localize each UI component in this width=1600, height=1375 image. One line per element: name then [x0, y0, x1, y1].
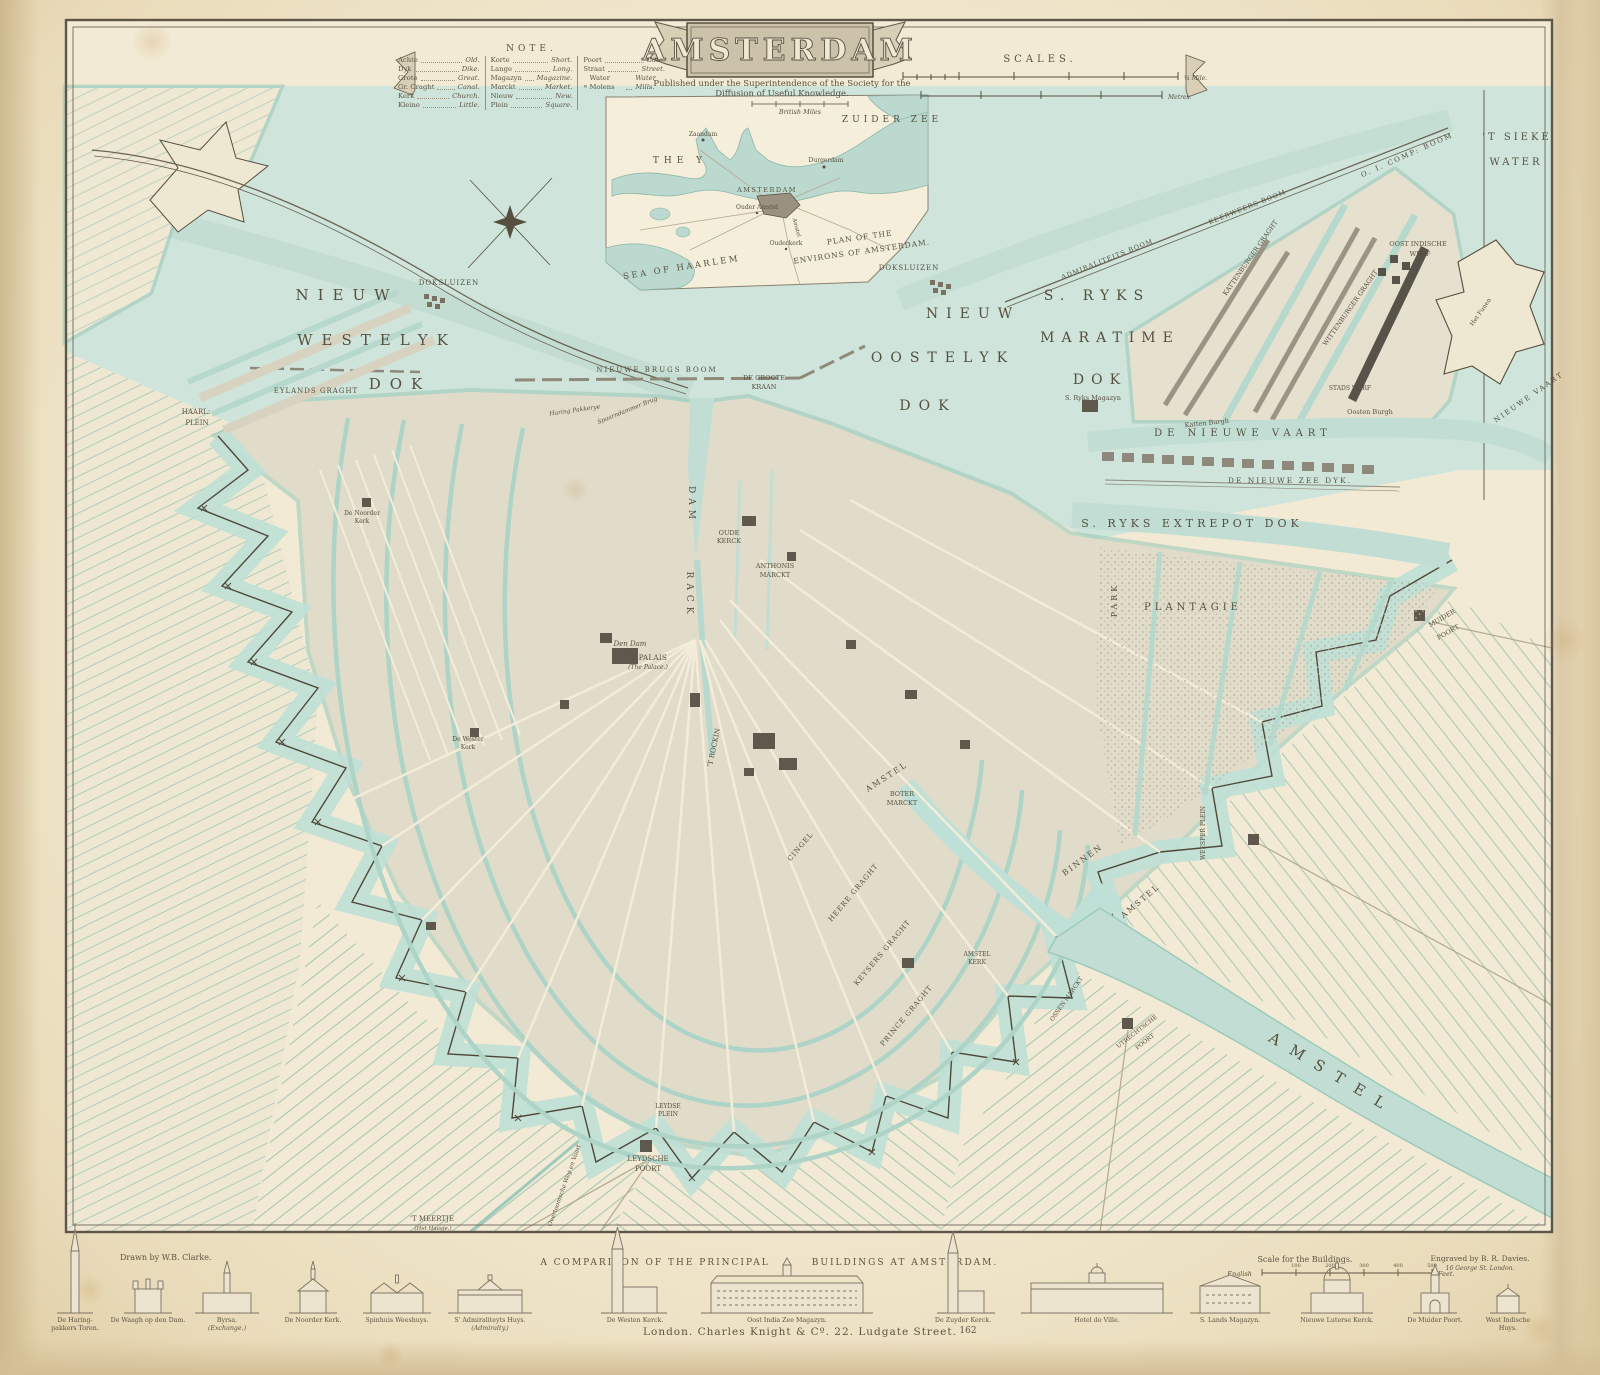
note-row: PleinSquare.	[491, 101, 573, 110]
note-row: MarcktMarket.	[491, 83, 573, 92]
note-column-1: AchteOld. DykDike. GroteGreat. Gr. Gragh…	[393, 56, 485, 110]
bldg-label-1a: De Haring-	[57, 1317, 92, 1324]
bldg-label-11: S. Lands Magazyn.	[1200, 1317, 1260, 1324]
note-heading: NOTE.	[393, 45, 670, 54]
label-wester-kerk-2: Kerk	[461, 744, 476, 751]
elevation-byrsa	[195, 1261, 259, 1313]
building-elevations	[57, 1223, 1526, 1313]
bldg-label-14a: West Indische	[1486, 1317, 1531, 1324]
label-zee-dyk: DE NIEUWE ZEE DYK.	[1228, 476, 1352, 485]
label-leydsche-poort-2: POORT	[635, 1165, 661, 1173]
note-column-3: PoortGate. StraatStreet. ✕Water MolensWa…	[577, 56, 670, 110]
label-wester-kerk-1: De Wester	[452, 736, 484, 743]
engraver-address: 16 George St. London.	[1446, 1265, 1515, 1272]
inset-zaandam: Zaandam	[689, 131, 718, 138]
scale-mile-label: ¾ Mile.	[1184, 75, 1207, 82]
label-park: PARK	[1110, 583, 1119, 617]
label-stads-werf: STADS WERF	[1329, 385, 1371, 392]
label-noorder-kerk-2: Kerk	[355, 518, 370, 525]
elevation-noorder-kerk	[289, 1261, 337, 1313]
note-row: KleineLittle.	[398, 101, 480, 110]
label-s-ryks-3: DOK	[1073, 372, 1127, 388]
elevation-spinhuis-weeshuys	[363, 1275, 431, 1313]
label-oi-werf-1: OOST INDISCHE	[1389, 240, 1447, 248]
bldg-label-14b: Huys.	[1499, 1325, 1517, 1332]
label-groote-kraan-2: KRAAN	[752, 383, 777, 391]
label-nieuw-westelyk-1: NIEUW	[295, 286, 398, 304]
scales-heading: SCALES.	[1003, 54, 1076, 65]
label-amstel-kerk-1: AMSTEL	[963, 951, 991, 958]
inset-ouder-amstel: Ouder Amstel	[736, 204, 778, 211]
note-row: KerkChurch.	[398, 92, 480, 101]
bldg-label-3b: (Exchange.)	[208, 1325, 247, 1332]
publisher-imprint: London. Charles Knight & Cº. 22. Ludgate…	[643, 1326, 957, 1338]
label-anthonis-1: ANTHONIS	[755, 562, 794, 570]
label-nieuw-westelyk-2: WESTELYK	[297, 331, 457, 349]
bldg-label-12: Nieuwe Luterse Kerck.	[1300, 1317, 1374, 1324]
bldg-label-6b: (Admiralty.)	[471, 1325, 509, 1332]
inset-zuider-zee: ZUIDER ZEE	[842, 115, 942, 125]
label-den-dam: Den Dam	[613, 640, 647, 648]
publisher-line2: Diffusion of Useful Knowledge.	[715, 89, 849, 99]
comparison-title-2: BUILDINGS AT AMSTERDAM.	[812, 1258, 998, 1268]
note-table: NOTE. AchteOld. DykDike. GroteGreat. Gr.…	[393, 45, 670, 110]
label-leydse-plein-1: LEYDSE	[655, 1103, 681, 1110]
note-row: GroteGreat.	[398, 74, 480, 83]
label-leydsche-poort-1: LEYDSCHE	[627, 1155, 668, 1163]
note-row: KorteShort.	[491, 56, 573, 65]
label-haarl-plein-1: HAARL:	[182, 408, 211, 416]
map-title: AMSTERDAM	[641, 33, 918, 68]
tick-400: 400	[1393, 1263, 1403, 1269]
tick-300: 300	[1359, 1263, 1369, 1269]
label-nieuw-oostelyk-2: OOSTELYK	[871, 350, 1015, 366]
bldg-label-5: Spinhuis Weeshuys.	[365, 1317, 428, 1324]
label-oude-kerck-1: OUDE	[719, 529, 740, 537]
label-doksluizen-east: DOKSLUIZEN	[879, 264, 939, 272]
label-amstel-kerk-2: KERK	[968, 959, 986, 966]
bldg-label-6a: S' Admiraliteyts Huys.	[454, 1317, 525, 1324]
label-noorder-kerk-1: De Noorder	[344, 510, 380, 517]
inset-the-y: THE Y	[653, 156, 707, 166]
label-sieke-2: WATER	[1490, 157, 1543, 168]
drawn-by-credit: Drawn by W.B. Clarke.	[120, 1253, 211, 1262]
elevation-hotel-de-ville	[1021, 1263, 1173, 1313]
tick-100: 100	[1291, 1263, 1301, 1269]
label-doksluizen-west: DOKSLUIZEN	[419, 279, 479, 287]
bldg-label-7: De Westen Kerck.	[607, 1317, 664, 1324]
bldg-label-10: Hotel de Ville.	[1074, 1317, 1120, 1324]
windmill-icon: ✕	[583, 83, 587, 92]
publisher-line1: Published under the Superintendence of t…	[653, 79, 910, 89]
bldg-label-1b: pakkers Toren.	[51, 1325, 99, 1332]
label-anthonis-2: MARCKT	[760, 571, 791, 579]
buildings-scale-bar	[1262, 1269, 1432, 1276]
label-dam: DAM	[686, 486, 696, 524]
note-row: Gr. GraghtCanal.	[398, 83, 480, 92]
label-s-ryks-2: MARATIME	[1040, 330, 1180, 346]
tick-200: 200	[1325, 1263, 1335, 1269]
label-weesper-plein: WEESPER PLEIN	[1200, 806, 1207, 860]
note-row: StraatStreet.	[583, 65, 665, 74]
label-rack: RACK	[684, 572, 694, 619]
comparison-title-1: A COMPARISON OF THE PRINCIPAL	[539, 1258, 769, 1268]
bldg-label-2: De Waagh op den Dam.	[111, 1317, 186, 1324]
inset-ouderkerk: Ouderkerk	[770, 240, 803, 247]
note-row: MagazynMagazine.	[491, 74, 573, 83]
label-brugs-boom: NIEUWE BRUGS BOOM	[596, 366, 717, 374]
elevation-westen-kerck	[601, 1227, 667, 1313]
elevation-lands-magazyn	[1190, 1275, 1270, 1313]
label-oude-kerck-2: KERCK	[717, 537, 741, 545]
label-nieuw-oostelyk-3: DOK	[899, 398, 956, 414]
label-palais: 'T PALAIS	[629, 653, 667, 662]
note-row: LangeLong.	[491, 65, 573, 74]
elevation-admiraliteyts-huys	[448, 1275, 532, 1313]
label-sieke-1: 'T SIEKE	[1482, 132, 1551, 143]
label-ryks-magazyn: S. Ryks Magazyn	[1065, 394, 1121, 402]
label-nieuwe-vaart: DE NIEUWE VAART	[1154, 428, 1332, 439]
note-column-2: KorteShort. LangeLong. MagazynMagazine. …	[485, 56, 578, 110]
label-eylands-graght: EYLANDS GRAGHT	[274, 387, 358, 395]
label-entrepot-dok: S. RYKS EXTREPOT DOK	[1081, 517, 1302, 530]
label-meertje: 'T MEERTJE	[410, 1215, 454, 1223]
bldg-label-13: De Muider Poort.	[1407, 1317, 1462, 1324]
note-row: DykDike.	[398, 65, 480, 74]
plate-number: 162	[959, 1326, 976, 1336]
label-leydse-plein-2: PLEIN	[658, 1111, 678, 1118]
label-oi-werf-2: WERF	[1410, 250, 1431, 258]
elevation-waagh	[124, 1279, 172, 1313]
note-row: PoortGate.	[583, 56, 665, 65]
comparison-strip: Drawn by W.B. Clarke. A COMPARISON OF TH…	[51, 1223, 1530, 1338]
label-palais-sub: (The Palace.)	[628, 664, 668, 671]
label-groote-kraan-1: DE GROOTE	[743, 374, 785, 382]
engraved-by-credit: Engraved by B. R. Davies.	[1431, 1254, 1530, 1263]
label-meertje-sub: (Het Haasje.)	[414, 1225, 451, 1232]
engraved-map: AMSTERDAM Published under the Superinten…	[0, 0, 1600, 1375]
map-sheet: AMSTERDAM Published under the Superinten…	[0, 0, 1600, 1375]
label-haarl-plein-2: PLEIN	[185, 419, 208, 427]
scale-metres-label: Metres.	[1167, 94, 1192, 101]
label-boter-2: MARCKT	[887, 799, 918, 807]
label-s-ryks-1: S. RYKS	[1044, 288, 1150, 304]
bldg-label-3a: Byrsa.	[217, 1317, 237, 1324]
note-row: AchteOld.	[398, 56, 480, 65]
note-row: NieuwNew.	[491, 92, 573, 101]
inset-durgerdam: Durgerdam	[809, 157, 844, 164]
bldg-label-4: De Noorder Kerk.	[285, 1317, 342, 1324]
elevation-west-indische-huys	[1490, 1284, 1526, 1313]
bldg-label-8: Oost India Zee Magazyn.	[747, 1317, 827, 1324]
inset-miles-label: British Miles	[778, 108, 822, 116]
elevation-zuyder-kerck	[937, 1231, 995, 1313]
bldg-label-9: De Zuyder Kerck.	[935, 1317, 991, 1324]
inset-amsterdam: AMSTERDAM	[736, 186, 797, 194]
note-row: ✕Water MolensWater Mills.	[583, 74, 665, 92]
label-plantagie: PLANTAGIE	[1144, 602, 1242, 613]
label-oosten-burgh: Oosten Burgh	[1347, 408, 1393, 416]
label-nieuw-oostelyk-1: NIEUW	[926, 306, 1020, 322]
label-nieuw-westelyk-3: DOK	[369, 375, 432, 393]
label-boter-1: BOTER	[890, 790, 915, 798]
